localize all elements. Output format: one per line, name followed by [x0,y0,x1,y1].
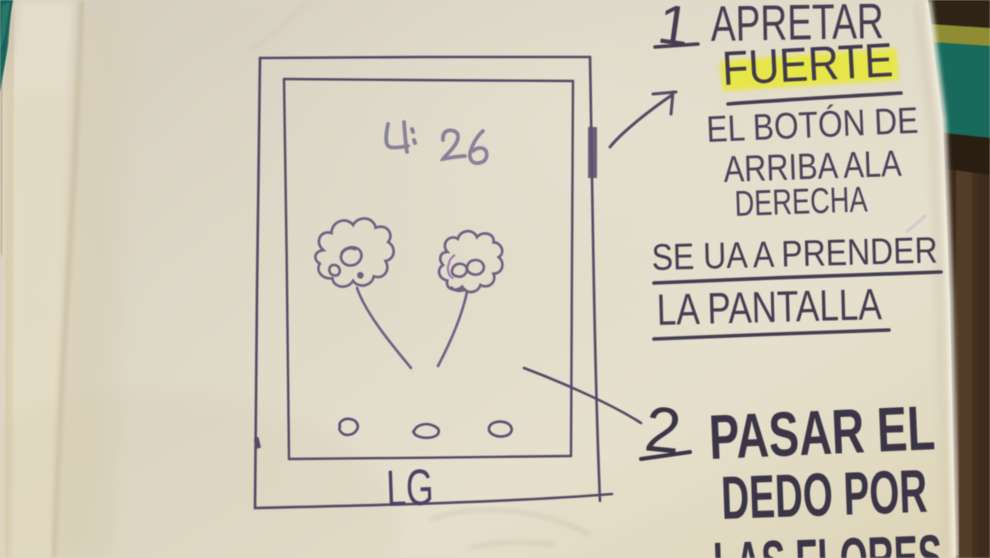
svg-text:LG: LG [385,458,434,517]
svg-text:FUERTE: FUERTE [721,34,895,96]
svg-text:DEDO POR: DEDO POR [720,457,928,532]
svg-text:LA PANTALLA: LA PANTALLA [656,280,883,335]
svg-text:DERECHA: DERECHA [734,178,868,224]
svg-text:SE UA A PRENDER: SE UA A PRENDER [651,230,938,278]
